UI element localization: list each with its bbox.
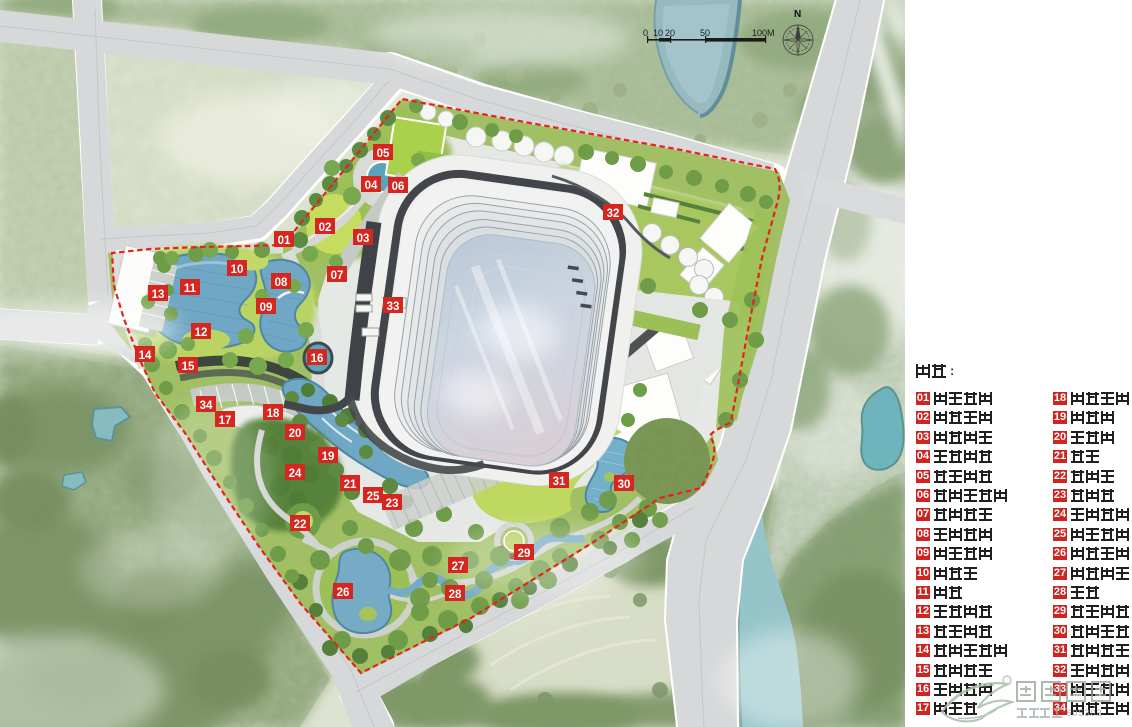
svg-text:26: 26 — [337, 587, 350, 599]
svg-text:24: 24 — [289, 468, 302, 480]
svg-text:09: 09 — [260, 302, 273, 314]
svg-text:29: 29 — [518, 548, 531, 560]
svg-text:01: 01 — [278, 235, 291, 247]
svg-text:07: 07 — [331, 270, 344, 282]
svg-text:06: 06 — [392, 181, 405, 193]
svg-text:10: 10 — [231, 264, 244, 276]
svg-text:27: 27 — [452, 561, 465, 573]
svg-text:14: 14 — [139, 350, 152, 362]
svg-text:12: 12 — [195, 327, 208, 339]
svg-text:05: 05 — [377, 148, 390, 160]
svg-text:32: 32 — [607, 208, 620, 220]
svg-text:21: 21 — [344, 479, 357, 491]
svg-text:10: 10 — [653, 28, 663, 38]
svg-text:13: 13 — [152, 289, 165, 301]
svg-text:100M: 100M — [752, 28, 775, 38]
svg-text:19: 19 — [322, 451, 335, 463]
svg-text:25: 25 — [367, 491, 380, 503]
svg-text:23: 23 — [386, 498, 399, 510]
svg-text:08: 08 — [275, 277, 288, 289]
svg-text:16: 16 — [311, 353, 324, 365]
svg-text:15: 15 — [182, 361, 195, 373]
svg-text:03: 03 — [357, 233, 370, 245]
svg-text:18: 18 — [267, 408, 280, 420]
svg-text:17: 17 — [219, 415, 232, 427]
svg-text:30: 30 — [618, 479, 631, 491]
svg-text:11: 11 — [184, 283, 197, 295]
svg-text:N: N — [794, 9, 801, 20]
svg-text:28: 28 — [449, 589, 462, 601]
svg-text:02: 02 — [319, 222, 332, 234]
svg-text:33: 33 — [387, 301, 400, 313]
svg-text:22: 22 — [294, 519, 307, 531]
svg-text:20: 20 — [289, 428, 302, 440]
svg-text:34: 34 — [200, 400, 213, 412]
svg-text:31: 31 — [553, 476, 566, 488]
svg-text:04: 04 — [365, 180, 378, 192]
